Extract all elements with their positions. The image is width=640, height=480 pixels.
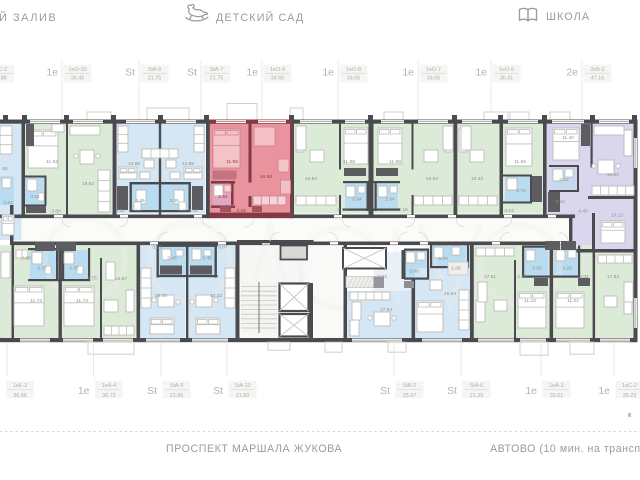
svg-text:StA-6: StA-6 xyxy=(470,383,483,389)
svg-text:1е: 1е xyxy=(475,67,487,79)
svg-text:1е: 1е xyxy=(525,385,537,397)
svg-text:3.70: 3.70 xyxy=(516,188,526,194)
svg-text:1еО-6: 1еО-6 xyxy=(499,67,514,73)
svg-text:34.65: 34.65 xyxy=(347,76,361,82)
svg-text:1е: 1е xyxy=(46,67,58,79)
svg-text:3.80: 3.80 xyxy=(409,269,419,275)
svg-text:НС-2: НС-2 xyxy=(0,67,7,73)
svg-text:11.98: 11.98 xyxy=(226,159,238,165)
svg-text:3.29: 3.29 xyxy=(562,266,572,272)
svg-text:St: St xyxy=(187,67,197,79)
svg-text:1еО-7: 1еО-7 xyxy=(426,67,441,73)
svg-text:21.75: 21.75 xyxy=(148,76,162,82)
svg-text:2.88: 2.88 xyxy=(21,256,31,262)
svg-text:1еЕ-2: 1еЕ-2 xyxy=(13,383,27,389)
svg-text:34.65: 34.65 xyxy=(427,76,441,82)
svg-text:14.96: 14.96 xyxy=(128,161,141,167)
svg-text:36.46: 36.46 xyxy=(71,76,85,82)
svg-text:4.75: 4.75 xyxy=(87,276,97,282)
svg-text:11.98: 11.98 xyxy=(343,159,355,165)
svg-text:3.45: 3.45 xyxy=(202,256,212,262)
svg-text:35.01: 35.01 xyxy=(550,393,564,399)
svg-text:1.06: 1.06 xyxy=(451,266,461,272)
svg-text:11.55: 11.55 xyxy=(514,159,526,165)
svg-text:4.33: 4.33 xyxy=(377,274,387,280)
svg-text:3.53: 3.53 xyxy=(517,274,527,280)
svg-text:3.37: 3.37 xyxy=(37,266,47,272)
svg-text:3.45: 3.45 xyxy=(167,256,177,262)
svg-text:16.50: 16.50 xyxy=(607,172,620,178)
svg-text:АВТОВО (10 мин. на трансп: АВТОВО (10 мин. на трансп xyxy=(490,443,640,455)
svg-text:18.62: 18.62 xyxy=(82,181,95,187)
svg-text:1еС-2: 1еС-2 xyxy=(622,383,637,389)
svg-text:3.34: 3.34 xyxy=(188,208,198,214)
svg-text:StA-9: StA-9 xyxy=(170,383,183,389)
svg-text:16.86: 16.86 xyxy=(260,174,273,180)
svg-text:3.19: 3.19 xyxy=(398,207,408,213)
svg-text:3.68: 3.68 xyxy=(51,209,61,215)
svg-text:21.96: 21.96 xyxy=(170,393,184,399)
svg-text:15.04: 15.04 xyxy=(444,291,457,297)
svg-text:2.64: 2.64 xyxy=(352,197,362,203)
svg-text:St: St xyxy=(125,67,135,79)
svg-text:Й: Й xyxy=(0,11,8,24)
svg-text:3.12: 3.12 xyxy=(30,194,40,200)
svg-text:34.65: 34.65 xyxy=(271,76,285,82)
svg-text:3.14: 3.14 xyxy=(504,208,514,214)
svg-text:10.12: 10.12 xyxy=(611,213,624,219)
svg-text:21.75: 21.75 xyxy=(210,76,224,82)
svg-text:2еВ-2: 2еВ-2 xyxy=(590,67,604,73)
svg-text:1е: 1е xyxy=(322,67,334,79)
svg-text:2.61: 2.61 xyxy=(3,200,13,206)
svg-text:ШКОЛА: ШКОЛА xyxy=(546,11,590,23)
svg-text:11.22: 11.22 xyxy=(524,298,536,304)
svg-text:ДЕТСКИЙ САД: ДЕТСКИЙ САД xyxy=(216,11,304,24)
svg-text:1е: 1е xyxy=(402,67,414,79)
svg-text:3.19: 3.19 xyxy=(236,208,246,214)
svg-text:1еА-4: 1еА-4 xyxy=(102,383,116,389)
svg-text:1е: 1е xyxy=(598,385,610,397)
svg-text:11.40: 11.40 xyxy=(562,135,574,141)
svg-text:3.22: 3.22 xyxy=(555,199,565,205)
svg-text:3.11: 3.11 xyxy=(152,245,161,251)
svg-text:11.62: 11.62 xyxy=(46,159,58,165)
svg-text:11.73: 11.73 xyxy=(76,298,88,304)
svg-text:2.64: 2.64 xyxy=(218,194,228,200)
svg-text:3.34: 3.34 xyxy=(115,208,125,214)
svg-text:3.45: 3.45 xyxy=(135,198,145,204)
svg-text:11.22: 11.22 xyxy=(567,298,579,304)
svg-text:3.12: 3.12 xyxy=(559,177,569,183)
svg-text:ЗАЛИВ: ЗАЛИВ xyxy=(13,12,57,24)
svg-text:2.04: 2.04 xyxy=(579,274,589,280)
svg-text:St: St xyxy=(447,385,457,397)
svg-text:2.64: 2.64 xyxy=(385,197,395,203)
svg-text:StB-2: StB-2 xyxy=(403,383,416,389)
svg-text:14.96: 14.96 xyxy=(182,161,195,167)
svg-text:2.85: 2.85 xyxy=(532,266,542,272)
svg-text:1еА-3: 1еА-3 xyxy=(549,383,563,389)
svg-text:21.39: 21.39 xyxy=(470,393,484,399)
svg-text:StA-10: StA-10 xyxy=(234,383,250,389)
svg-text:1еО-9: 1еО-9 xyxy=(270,67,285,73)
svg-text:16.84: 16.84 xyxy=(305,176,318,182)
svg-text:3.19: 3.19 xyxy=(337,207,347,213)
svg-text:1еО-8: 1еО-8 xyxy=(346,67,361,73)
svg-text:3.37: 3.37 xyxy=(69,266,79,272)
svg-text:StA-7: StA-7 xyxy=(210,67,223,73)
svg-text:17.64: 17.64 xyxy=(607,274,620,280)
svg-text:17.61: 17.61 xyxy=(484,274,497,280)
svg-text:1е: 1е xyxy=(246,67,258,79)
svg-text:1еО-10: 1еО-10 xyxy=(69,67,87,73)
svg-text:36.41: 36.41 xyxy=(500,76,514,82)
svg-text:17.84: 17.84 xyxy=(380,307,393,313)
svg-text:11.98: 11.98 xyxy=(389,159,401,165)
svg-text:3.07: 3.07 xyxy=(218,245,228,251)
svg-text:1е: 1е xyxy=(78,385,90,397)
svg-text:35.23: 35.23 xyxy=(623,393,637,399)
svg-text:к: к xyxy=(628,410,632,419)
svg-text:47.16: 47.16 xyxy=(591,76,605,82)
svg-text:18.42: 18.42 xyxy=(471,176,484,182)
svg-text:11.73: 11.73 xyxy=(30,298,42,304)
svg-text:16.84: 16.84 xyxy=(426,176,439,182)
svg-text:St: St xyxy=(213,385,223,397)
svg-text:3.45: 3.45 xyxy=(169,198,179,204)
svg-text:2е: 2е xyxy=(566,67,578,79)
svg-text:16.87: 16.87 xyxy=(115,276,128,282)
svg-text:65: 65 xyxy=(2,166,8,172)
svg-text:21.83: 21.83 xyxy=(236,393,250,399)
svg-text:36.66: 36.66 xyxy=(13,393,27,399)
svg-text:15.40: 15.40 xyxy=(155,293,168,299)
svg-text:3.29: 3.29 xyxy=(438,256,448,262)
svg-text:36.72: 36.72 xyxy=(102,393,116,399)
svg-text:4.40: 4.40 xyxy=(578,209,588,215)
svg-text:St: St xyxy=(147,385,157,397)
svg-text:25.88: 25.88 xyxy=(0,76,7,82)
svg-text:St: St xyxy=(380,385,390,397)
svg-text:StA-8: StA-8 xyxy=(148,67,161,73)
svg-text:ПРОСПЕКТ МАРШАЛА ЖУКОВА: ПРОСПЕКТ МАРШАЛА ЖУКОВА xyxy=(166,443,342,455)
svg-text:25.97: 25.97 xyxy=(403,393,417,399)
svg-text:15.32: 15.32 xyxy=(210,293,223,299)
